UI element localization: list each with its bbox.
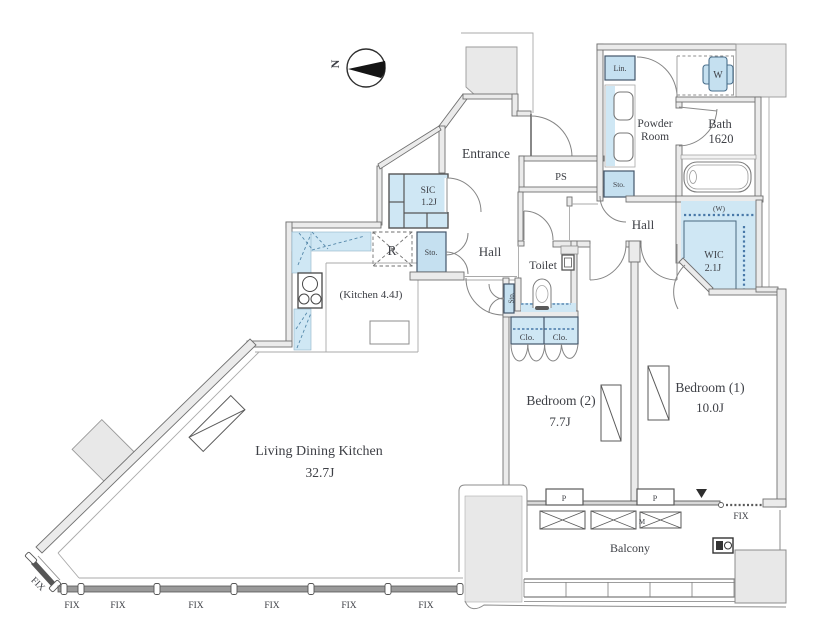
svg-text:P: P (562, 494, 567, 503)
svg-text:Bedroom (2): Bedroom (2) (526, 393, 595, 408)
svg-text:FIX: FIX (264, 601, 279, 611)
svg-text:Bedroom (1): Bedroom (1) (675, 380, 744, 395)
svg-text:Powder: Powder (637, 118, 672, 130)
svg-text:PS: PS (555, 172, 567, 183)
svg-text:Bath: Bath (708, 117, 732, 131)
svg-text:W: W (713, 70, 723, 81)
svg-text:R: R (387, 243, 396, 258)
svg-text:Entrance: Entrance (462, 146, 510, 161)
svg-text:1620: 1620 (709, 132, 734, 146)
svg-text:N: N (328, 59, 342, 68)
svg-text:P: P (653, 494, 658, 503)
svg-text:Sto.: Sto. (425, 248, 438, 257)
svg-text:Room: Room (641, 131, 669, 143)
svg-text:Lin.: Lin. (613, 64, 626, 73)
svg-text:2.1J: 2.1J (705, 263, 722, 274)
svg-text:(W): (W) (713, 204, 726, 213)
svg-text:Hall: Hall (479, 244, 502, 259)
svg-text:FIX: FIX (733, 512, 748, 522)
svg-text:Sto.: Sto. (613, 180, 625, 189)
svg-text:Clo.: Clo. (520, 332, 534, 342)
svg-text:FIX: FIX (418, 601, 433, 611)
svg-text:FIX: FIX (110, 601, 125, 611)
svg-text:Living Dining Kitchen: Living Dining Kitchen (255, 444, 383, 459)
svg-text:Toilet: Toilet (529, 258, 557, 272)
svg-text:FIX: FIX (64, 601, 79, 611)
svg-text:Clo.: Clo. (553, 332, 567, 342)
svg-text:SIC: SIC (421, 186, 436, 196)
svg-text:32.7J: 32.7J (306, 465, 335, 480)
svg-text:10.0J: 10.0J (696, 400, 724, 415)
svg-text:Sto.: Sto. (508, 292, 516, 303)
svg-text:FIX: FIX (341, 601, 356, 611)
svg-text:7.7J: 7.7J (549, 414, 570, 429)
svg-text:1.2J: 1.2J (421, 198, 437, 208)
svg-text:Balcony: Balcony (610, 541, 650, 555)
svg-text:M: M (639, 518, 646, 526)
svg-text:(Kitchen 4.4J): (Kitchen 4.4J) (340, 289, 403, 301)
svg-text:WIC: WIC (704, 250, 724, 261)
svg-text:FIX: FIX (188, 601, 203, 611)
svg-text:Hall: Hall (632, 217, 655, 232)
